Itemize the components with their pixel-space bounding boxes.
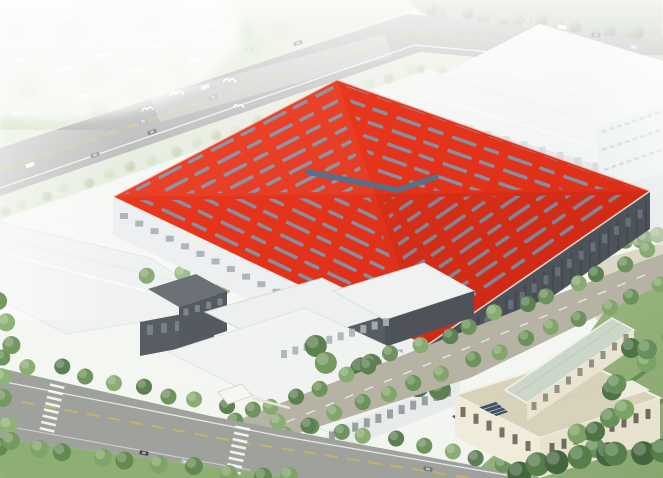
window-unit [195,305,200,312]
tree [326,405,342,421]
tree [486,304,502,320]
window-unit [360,325,366,333]
window-unit [349,329,355,337]
window-unit [614,226,619,235]
window-unit [212,258,220,264]
window-unit [387,410,393,419]
window-unit [579,251,584,260]
window-unit [372,322,378,330]
window-unit [526,441,531,451]
tree [2,336,20,354]
window-unit [552,265,554,295]
window-unit [410,401,416,410]
tree [53,443,71,461]
tree [381,386,397,402]
tree [312,381,328,397]
window-unit [532,402,537,410]
tree [360,358,376,374]
window-unit [474,414,479,424]
window-unit [147,325,153,335]
tree [568,445,592,469]
tree [77,368,93,384]
tree [588,266,604,282]
window-unit [166,236,174,242]
window-unit [561,259,563,289]
window-unit [578,368,583,376]
tree [606,374,626,394]
tree [150,455,168,473]
tree [637,339,657,359]
tree [19,359,35,375]
tree [433,366,449,382]
tree [315,352,337,374]
tree [445,444,461,460]
tree [571,275,587,291]
window-unit [364,418,370,427]
window-unit [218,299,223,306]
window-unit [646,409,651,419]
tree [602,300,618,316]
window-unit [181,243,189,249]
window-unit [120,213,128,219]
tree [538,288,554,304]
window-unit [626,218,631,227]
tree [461,319,477,335]
window-unit [580,246,582,276]
window-unit [555,267,560,276]
window-unit [589,360,594,368]
window-unit [338,332,344,340]
tree [355,394,371,410]
window-unit [638,210,643,219]
tree [465,351,481,367]
tree [136,379,152,395]
window-unit [555,385,560,393]
window-unit [601,351,606,359]
window-unit [242,274,250,280]
window-unit [196,251,204,257]
window-unit [612,343,617,351]
tree [405,375,421,391]
window-unit [590,242,595,251]
window-unit [645,201,647,231]
tree [520,296,536,312]
window-unit [487,421,492,431]
tree [617,256,633,272]
tree [623,289,639,305]
tree [382,345,398,361]
tree [338,367,354,383]
window-unit [602,234,607,243]
window-unit [399,405,405,414]
tree [468,450,484,466]
window-unit [634,413,639,423]
window-unit [281,350,287,358]
aerial-rendering-canvas [0,0,663,478]
tree [639,242,655,258]
tree [139,268,155,284]
window-unit [608,227,610,257]
tree [442,328,458,344]
tree [567,424,587,444]
tree [185,457,203,475]
tree [245,402,261,418]
tree [288,389,304,405]
tree [31,440,49,458]
tree [585,421,605,441]
tree [301,418,317,434]
tree [388,431,404,447]
window-unit [532,284,537,293]
window-unit [422,396,428,405]
window-unit [513,434,518,444]
window-unit [375,414,381,423]
window-unit [461,407,466,417]
window-unit [500,427,505,437]
window-unit [161,323,167,333]
tree [94,448,112,466]
window-unit [617,220,619,250]
tree [543,319,559,335]
window-unit [598,233,600,263]
haze-left [0,130,130,320]
window-unit [566,377,571,385]
tree [334,424,350,440]
tree [2,432,20,450]
window-unit [562,439,567,449]
tree [603,442,627,466]
tree [54,358,70,374]
window-unit [135,221,143,227]
tree [545,450,569,474]
window-unit [184,309,189,316]
window-unit [227,266,235,272]
tree [518,330,534,346]
window-unit [292,346,298,354]
aerial-rendering [0,0,663,478]
tree [106,375,122,391]
tree [614,399,634,419]
window-unit [206,302,211,309]
tree [492,344,508,360]
window-unit [567,259,572,268]
window-unit [543,394,548,402]
window-unit [508,300,513,309]
tree [571,311,587,327]
tree [413,337,429,353]
tree [355,428,371,444]
tree [270,413,286,429]
window-unit [383,318,389,326]
window-unit [636,207,638,237]
tree [115,452,133,470]
window-unit [257,281,265,287]
tree [186,391,202,407]
tree [416,438,432,454]
window-unit [326,336,332,344]
tree [160,389,176,405]
window-unit [543,275,548,284]
window-unit [151,228,159,234]
